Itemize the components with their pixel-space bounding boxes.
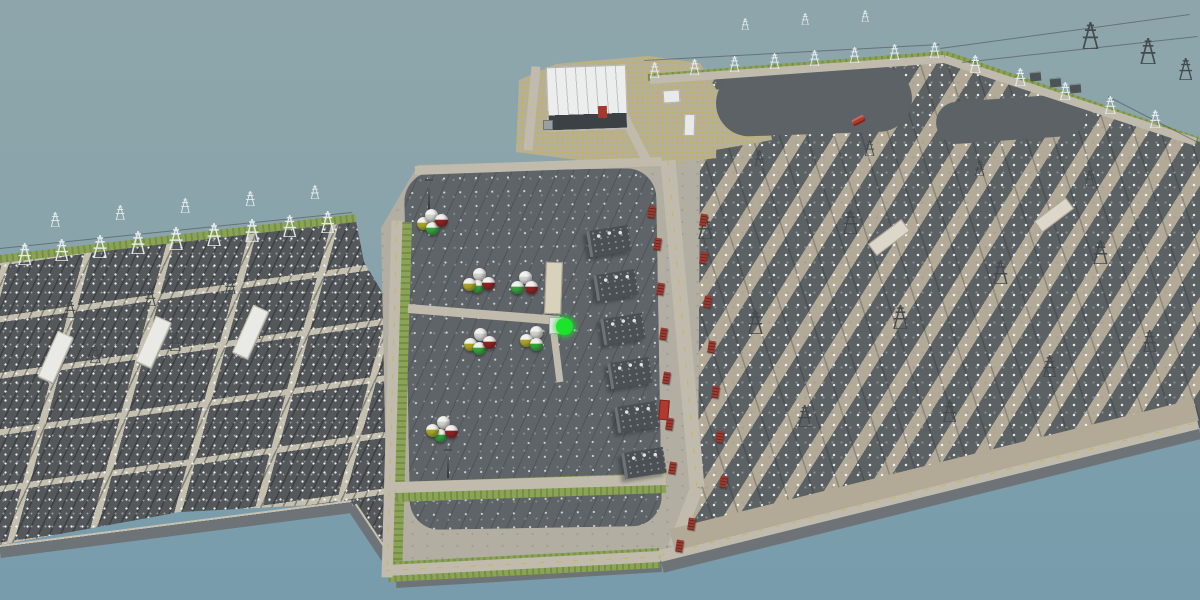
auxiliary-building[interactable] — [544, 262, 563, 315]
transmission-tower — [889, 44, 900, 60]
equipment-shed[interactable] — [684, 114, 696, 136]
transmission-tower — [992, 260, 1009, 284]
transmission-tower — [1142, 330, 1157, 352]
transmission-tower — [649, 62, 660, 78]
transmission-tower — [801, 13, 809, 25]
transmission-tower — [729, 56, 740, 72]
transmission-tower — [169, 333, 182, 351]
transmission-tower — [244, 219, 260, 242]
transmission-tower — [1092, 240, 1109, 264]
spherical-tank[interactable] — [426, 424, 439, 437]
transmission-tower — [1149, 110, 1162, 128]
red-cabinet[interactable] — [598, 106, 607, 118]
transmission-tower — [89, 345, 102, 363]
box-transformer[interactable] — [1050, 78, 1062, 88]
transmission-tower — [54, 239, 69, 261]
transmission-tower — [861, 10, 869, 22]
transmission-tower — [797, 405, 812, 427]
transmission-tower — [1178, 58, 1193, 80]
transmission-tower — [969, 55, 982, 73]
transmission-tower — [144, 288, 157, 306]
spherical-tank[interactable] — [525, 281, 538, 294]
transmission-tower — [17, 243, 32, 265]
transmission-tower — [942, 400, 957, 422]
transmission-tower — [320, 211, 335, 233]
transmission-tower — [1139, 38, 1157, 64]
transmission-tower — [1084, 170, 1095, 186]
substation-3d-viewport[interactable] — [0, 0, 1200, 600]
transmission-tower — [741, 18, 749, 30]
lightning-mast — [447, 446, 449, 478]
transmission-tower — [892, 305, 909, 329]
box-transformer[interactable] — [1070, 84, 1082, 94]
spherical-tank[interactable] — [482, 277, 495, 290]
spherical-tank[interactable] — [435, 214, 448, 227]
transmission-tower — [1042, 355, 1057, 377]
transmission-tower — [1104, 96, 1117, 114]
transmission-tower — [929, 42, 940, 58]
transmission-tower — [809, 50, 820, 66]
transmission-tower — [245, 191, 256, 206]
transmission-tower — [115, 205, 126, 220]
transmission-tower — [130, 231, 146, 254]
equipment-shed[interactable] — [663, 89, 681, 103]
transmission-tower — [282, 215, 297, 237]
storage-shed[interactable] — [543, 120, 553, 130]
transmission-tower — [849, 47, 860, 63]
transmission-tower — [769, 53, 780, 69]
spherical-tank[interactable] — [463, 278, 476, 291]
transmission-tower — [224, 276, 237, 294]
transmission-tower — [206, 223, 222, 246]
transmission-tower — [689, 59, 700, 75]
selected-spherical-tank[interactable] — [556, 318, 573, 335]
lightning-mast — [428, 176, 430, 210]
transmission-tower — [92, 235, 108, 258]
spherical-tank[interactable] — [511, 281, 524, 294]
transmission-tower — [864, 140, 875, 156]
transmission-tower — [168, 227, 184, 250]
control-building[interactable] — [546, 65, 628, 132]
transmission-tower — [754, 150, 765, 166]
transmission-tower — [1014, 68, 1027, 86]
spherical-tank[interactable] — [483, 336, 496, 349]
transmission-tower — [1081, 22, 1100, 49]
transmission-tower — [974, 160, 985, 176]
transmission-tower — [747, 310, 764, 334]
spherical-tank[interactable] — [445, 425, 458, 438]
box-transformer[interactable] — [1030, 72, 1042, 82]
transmission-tower — [842, 210, 859, 234]
transmission-tower — [50, 212, 61, 227]
transmission-tower — [310, 185, 320, 199]
transmission-tower — [64, 300, 77, 318]
transmission-tower — [180, 198, 191, 213]
spherical-tank[interactable] — [530, 338, 543, 351]
